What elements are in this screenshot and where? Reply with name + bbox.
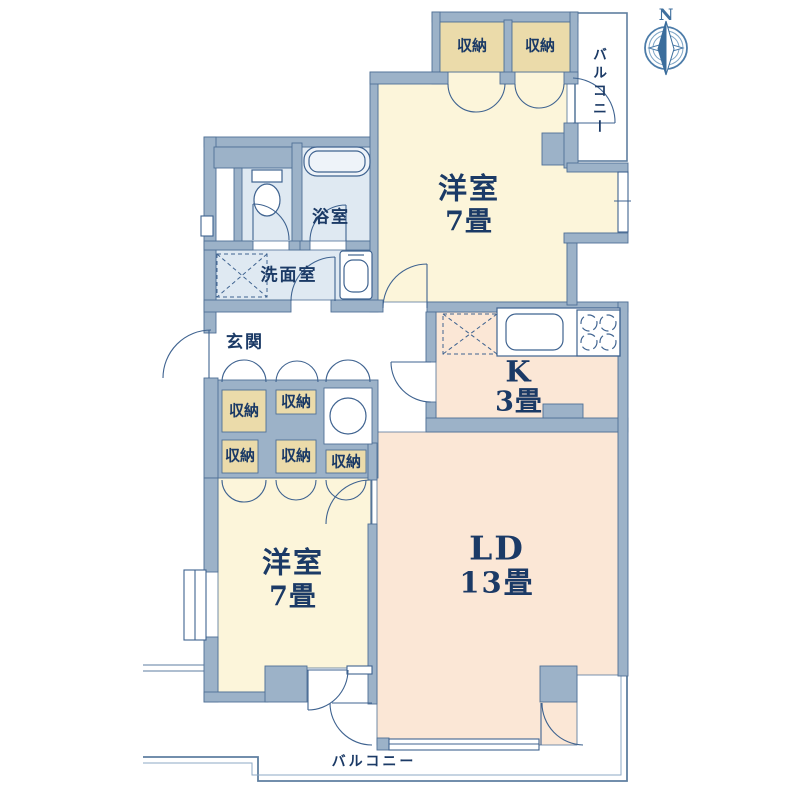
bedroom-top-name: 洋室	[438, 175, 500, 204]
entrance-label: 玄関	[226, 335, 264, 352]
compass-icon	[645, 21, 687, 75]
window-recess-sill	[347, 666, 372, 674]
meter-box	[201, 216, 213, 236]
closet-doors-hall	[222, 360, 370, 382]
closet-label: 収納	[229, 404, 259, 419]
kitchen-door	[391, 362, 431, 402]
washbasin-icon	[340, 251, 372, 299]
washroom-label: 洗面室	[261, 268, 318, 285]
entrance-door	[163, 330, 211, 378]
closet-label: 収納	[225, 449, 255, 464]
closet-label: 収納	[525, 39, 555, 54]
compass-north-label: N	[659, 7, 674, 23]
bedroom-left-size: 7畳	[269, 584, 317, 611]
living-balcony-door-left	[330, 703, 372, 745]
water-heater-icon	[330, 398, 366, 434]
closet-label: 収納	[331, 455, 361, 470]
kitchen-size: 3畳	[495, 389, 543, 416]
bathtub-icon	[304, 147, 370, 176]
closet-label: 収納	[281, 449, 311, 464]
living-dining-size: 13畳	[459, 569, 534, 598]
toilet-icon	[252, 170, 282, 216]
closet-label: 収納	[281, 395, 311, 410]
bedroom-left-name: 洋室	[262, 549, 324, 578]
boundary-line	[143, 665, 204, 671]
closet-label: 収納	[457, 39, 487, 54]
living-dining-name: LD	[469, 532, 525, 565]
bathroom-label: 浴室	[312, 210, 350, 227]
floorplan-drawing	[0, 0, 800, 800]
balcony-right-label: バルコニー	[592, 47, 606, 137]
bedroom-left-balcony-door	[307, 670, 348, 710]
floorplan: N 収納 収納 バルコニー 洋室 7畳 浴室 洗面室 玄関 K 3畳 収納 収納…	[0, 0, 800, 800]
window-bedroom-top-east	[618, 172, 628, 232]
bedroom-top-size: 7畳	[445, 209, 493, 236]
balcony-bottom-label: バルコニー	[332, 755, 417, 769]
kitchen-name: K	[505, 358, 532, 387]
